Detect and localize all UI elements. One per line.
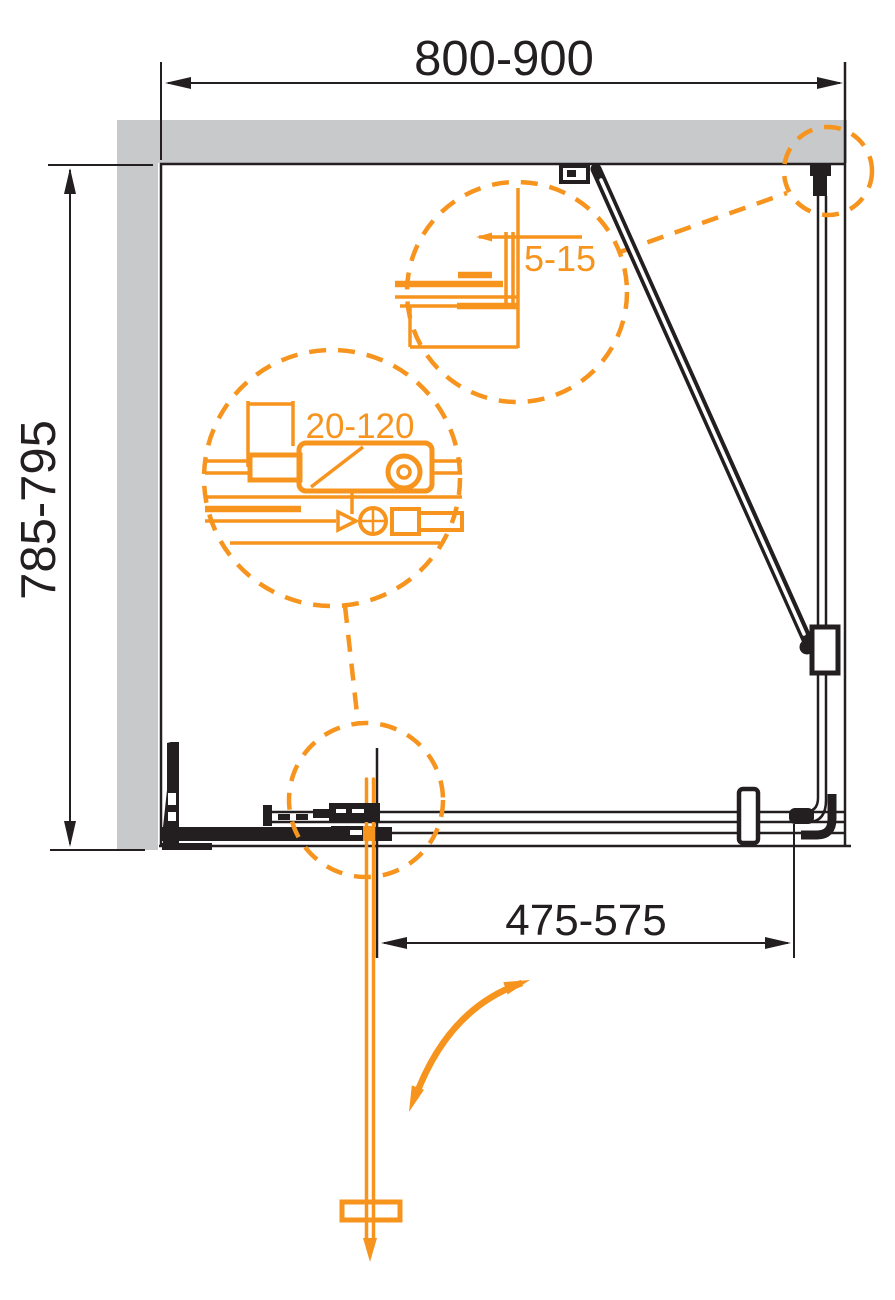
wall-left bbox=[117, 163, 158, 850]
wall-top bbox=[117, 120, 847, 163]
detail-circle-wall-gap: 5-15 bbox=[395, 182, 627, 402]
door-tip bbox=[363, 1238, 377, 1262]
door-width-label: 475-575 bbox=[505, 896, 666, 945]
detail-circle-roller: 20-120 bbox=[204, 350, 462, 606]
bottom-track bbox=[159, 742, 851, 850]
fixed-glass-panel bbox=[804, 163, 838, 822]
door-handle bbox=[342, 1202, 400, 1220]
diagram-canvas: 800-900 785-795 bbox=[0, 0, 895, 1300]
adjustment-label: 20-120 bbox=[306, 407, 415, 446]
wall-gap-label: 5-15 bbox=[524, 238, 596, 279]
door-swing-arrow bbox=[409, 980, 530, 1112]
dimension-door-width: 475-575 bbox=[377, 748, 794, 958]
door-bottom-guide bbox=[363, 826, 374, 841]
left-depth-label: 785-795 bbox=[12, 420, 66, 600]
closed-door-panel bbox=[329, 779, 400, 1262]
open-door-panel bbox=[561, 166, 815, 655]
support-bar-connector bbox=[812, 627, 838, 673]
top-width-label: 800-900 bbox=[414, 32, 594, 86]
